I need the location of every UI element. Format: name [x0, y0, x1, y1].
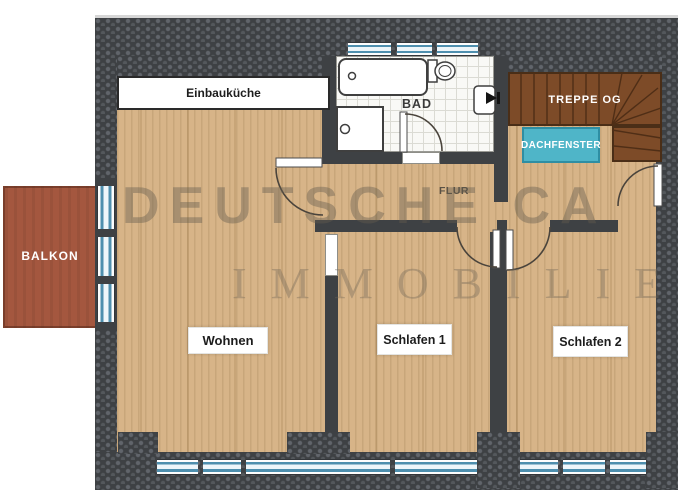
plan-linework-overlay — [0, 0, 700, 500]
door-arc-living — [276, 168, 323, 215]
bedroom1-label: Schlafen 1 — [377, 324, 452, 355]
bath-label: BAD — [396, 96, 438, 112]
door-arc-stair-landing — [618, 166, 658, 206]
balcony-label: BALKON — [3, 246, 97, 266]
hallway-label: FLUR — [432, 184, 476, 198]
kitchen-counter: Einbauküche — [117, 76, 330, 110]
roof-window-label: DACHFENSTER — [522, 127, 600, 163]
stairs-label: TREPPE OG — [508, 92, 662, 108]
living-label: Wohnen — [188, 327, 268, 354]
bedroom2-label: Schlafen 2 — [553, 326, 628, 357]
kitchen-label: Einbauküche — [186, 86, 261, 100]
floor-plan: Einbauküche BAD TREPPE OG DACHFENSTER FL… — [0, 0, 700, 500]
door-arc-bedroom1 — [457, 227, 497, 267]
door-arc-bath — [405, 114, 442, 151]
